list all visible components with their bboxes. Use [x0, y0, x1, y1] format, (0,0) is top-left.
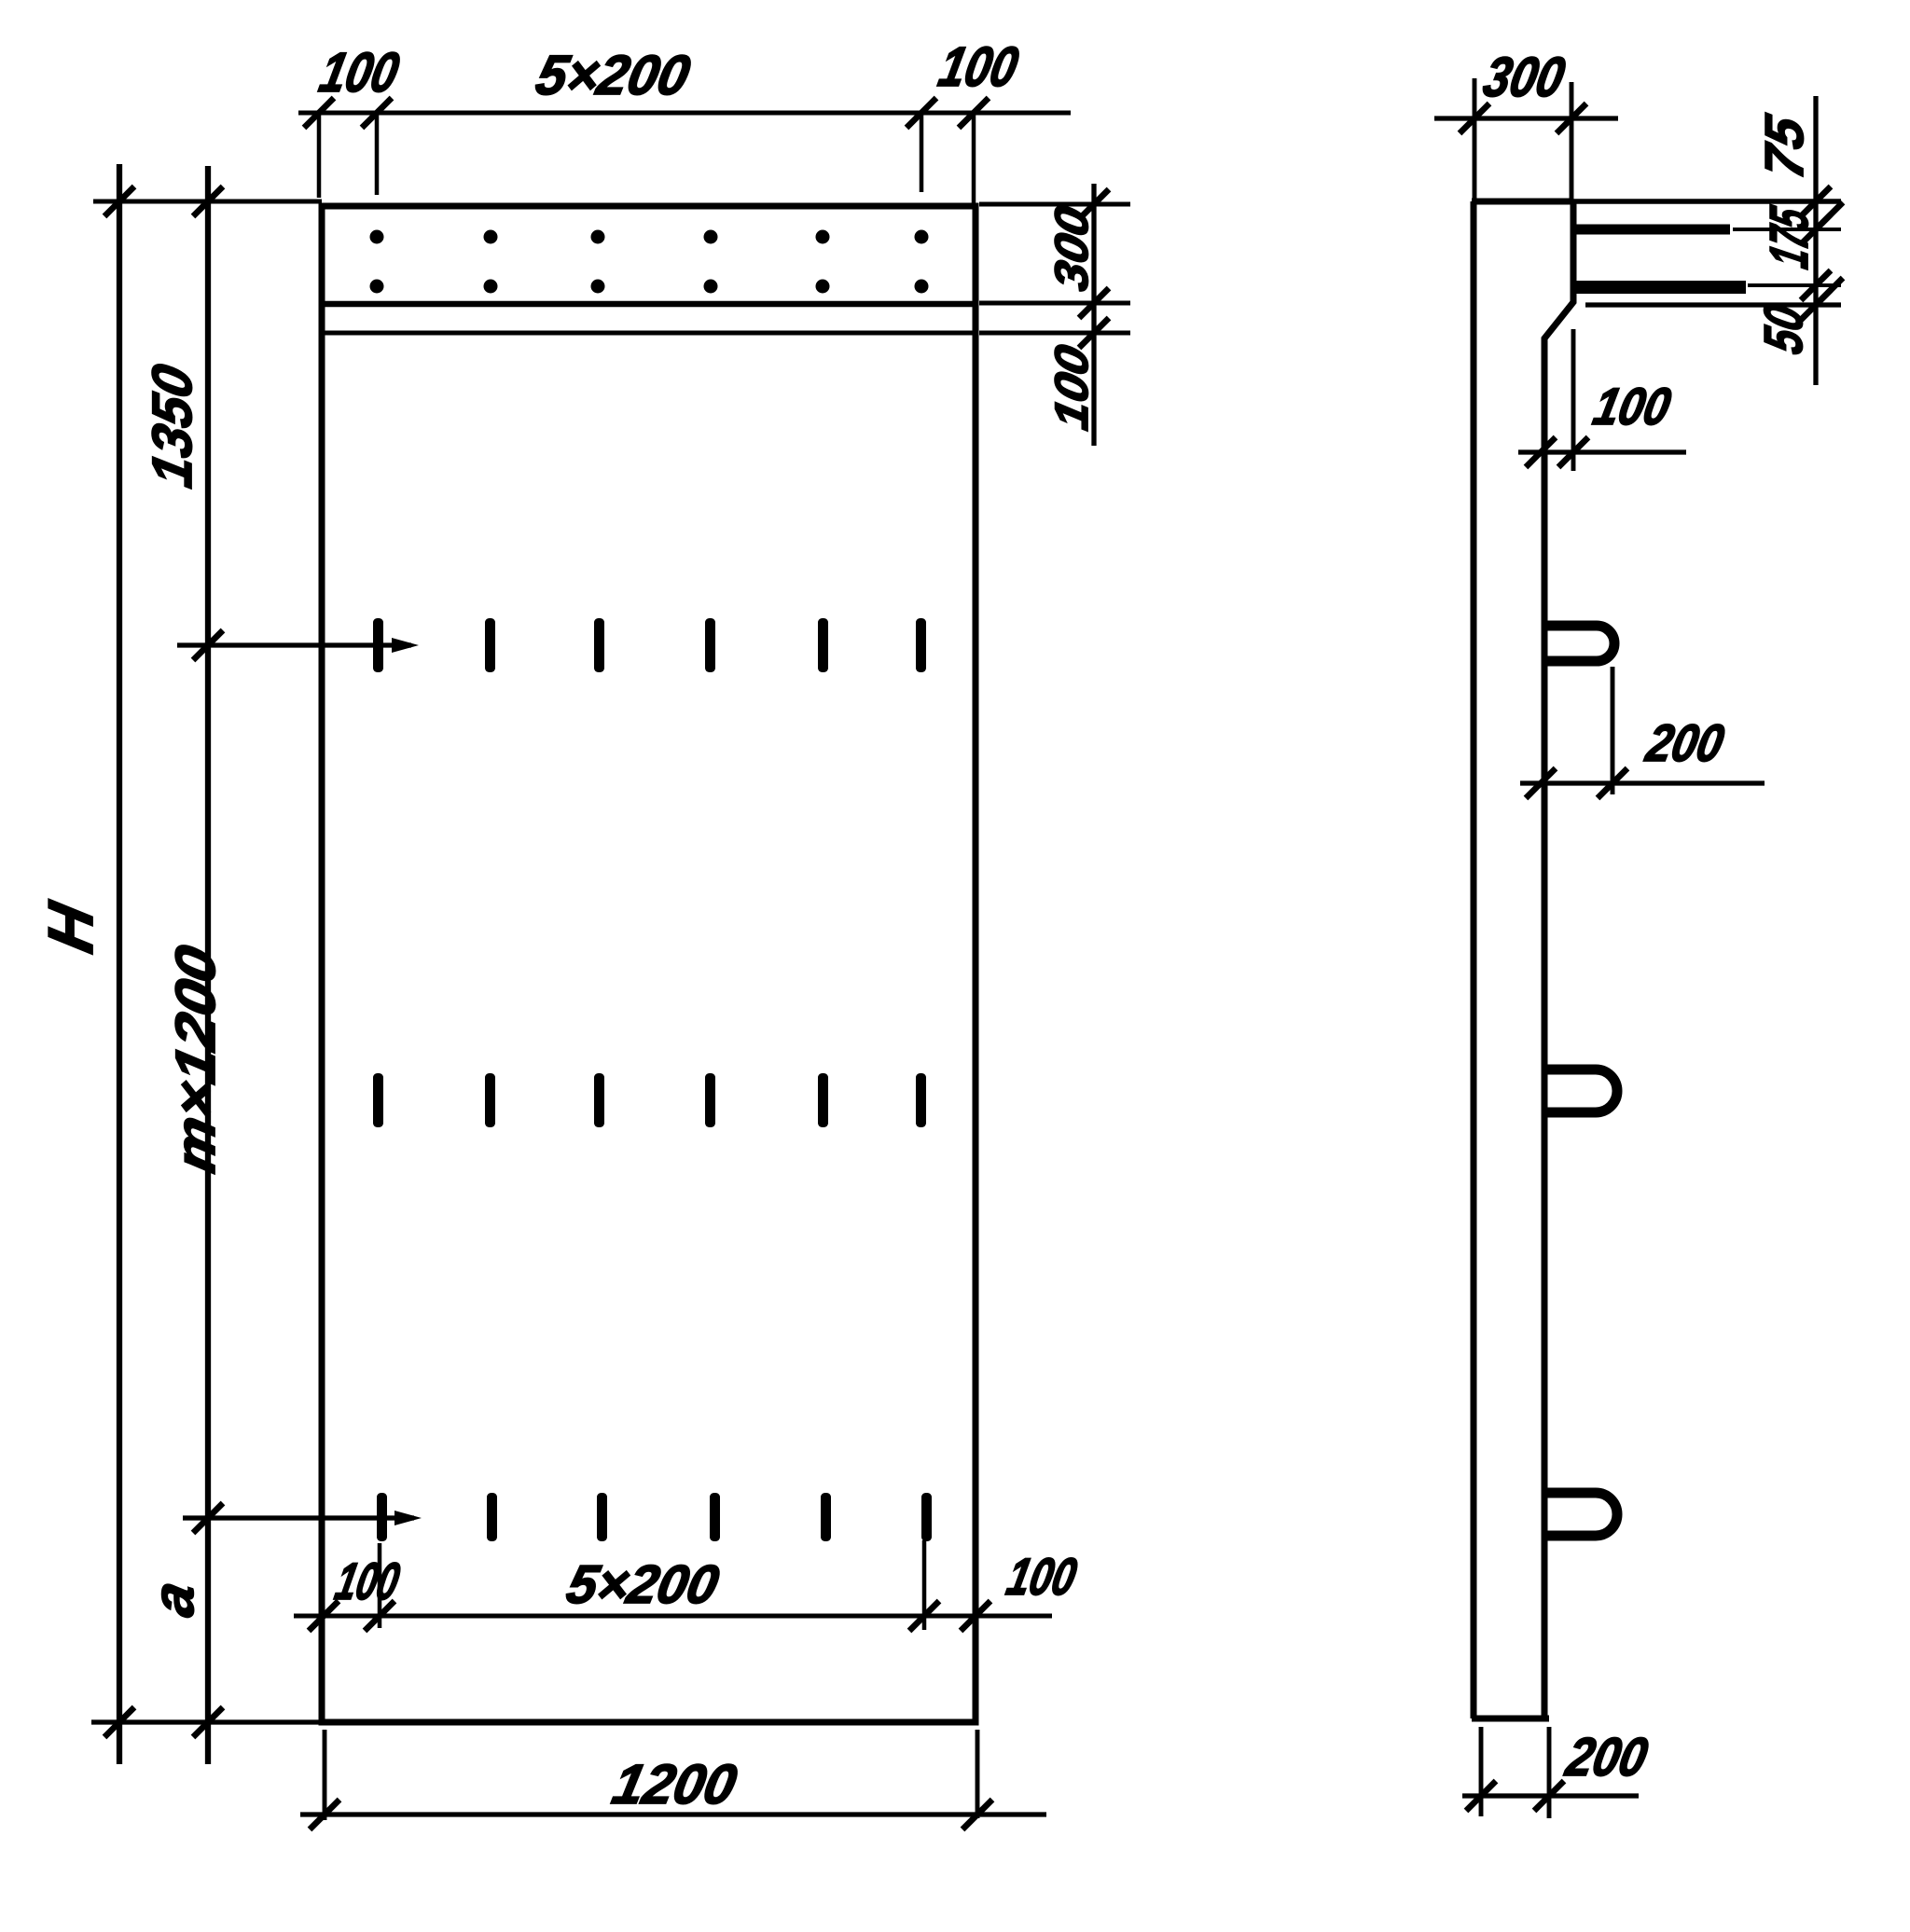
svg-text:100: 100	[330, 1552, 404, 1610]
svg-text:200: 200	[1560, 1728, 1653, 1787]
svg-text:200: 200	[1641, 714, 1729, 772]
svg-text:100: 100	[1045, 340, 1098, 434]
svg-text:300: 300	[1478, 46, 1571, 108]
svg-text:100: 100	[314, 41, 405, 103]
svg-text:100: 100	[1002, 1548, 1081, 1606]
svg-text:m×1200: m×1200	[164, 940, 227, 1178]
svg-text:5×200: 5×200	[531, 44, 696, 106]
svg-text:1350: 1350	[141, 359, 203, 492]
svg-text:5×200: 5×200	[561, 1555, 724, 1615]
svg-text:100: 100	[1588, 378, 1675, 435]
svg-text:1200: 1200	[607, 1753, 742, 1815]
svg-text:100: 100	[934, 35, 1024, 98]
svg-text:300: 300	[1045, 201, 1098, 295]
